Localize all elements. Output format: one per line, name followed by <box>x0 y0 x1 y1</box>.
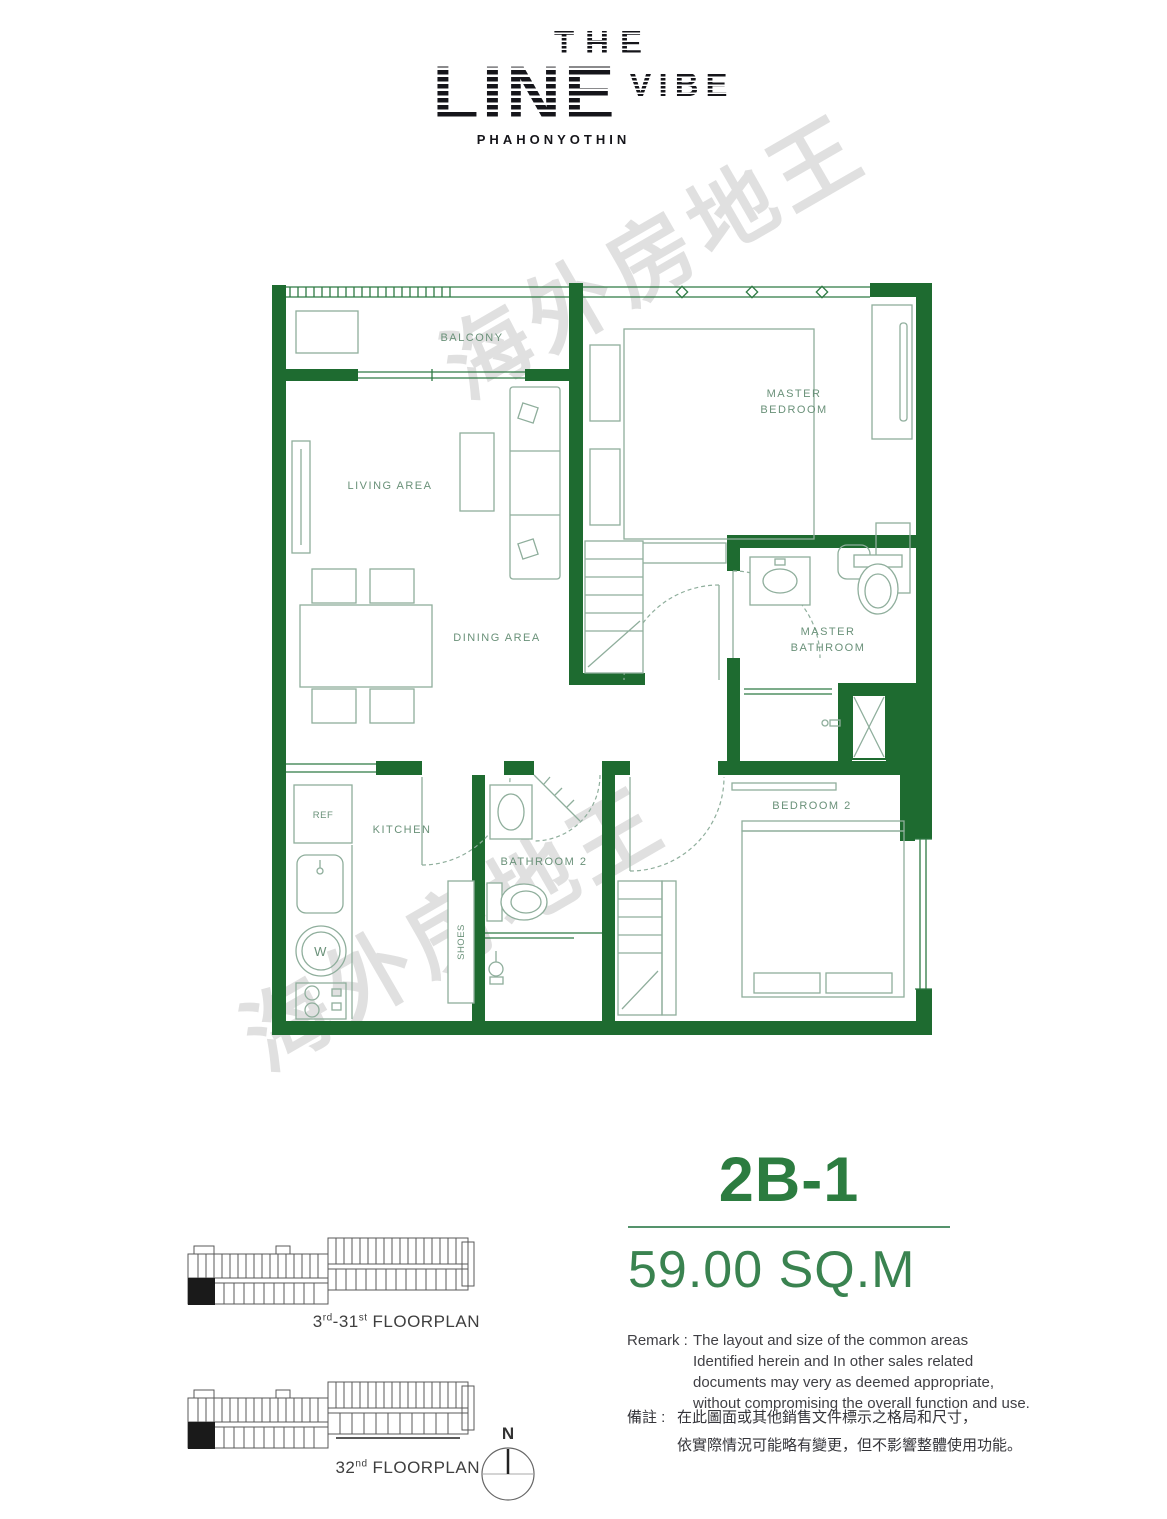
building-floorplan-3-31 <box>180 1226 480 1316</box>
label-shoes: SHOES <box>456 924 467 960</box>
unit-name: 2B-1 <box>628 1144 950 1216</box>
svg-text:BATHROOM: BATHROOM <box>791 642 866 654</box>
balcony-unit <box>296 311 358 353</box>
master-bed <box>624 329 814 539</box>
toilet-tank <box>487 883 502 921</box>
dining-chair <box>370 569 414 603</box>
bathroom2-fixtures <box>485 785 602 984</box>
shaft <box>852 695 886 759</box>
shelf <box>732 783 836 790</box>
dining-chair <box>312 689 356 723</box>
living-dining-furniture <box>292 387 560 723</box>
dining-table <box>300 605 432 687</box>
bedroom2-furniture <box>618 783 904 1015</box>
svg-text:BEDROOM: BEDROOM <box>760 404 827 416</box>
toilet <box>858 564 898 614</box>
headboard <box>742 821 904 831</box>
building-floorplan-32 <box>180 1370 480 1460</box>
compass-icon <box>479 1445 537 1503</box>
remark-line: documents may very as deemed appropriate… <box>693 1372 1030 1393</box>
pillow <box>590 345 620 421</box>
remark-line: Identified herein and In other sales rel… <box>693 1351 1030 1372</box>
dining-chair <box>370 689 414 723</box>
label-dining: DINING AREA <box>453 632 540 644</box>
remark-label: Remark : <box>627 1330 693 1414</box>
label-master-bathroom: MASTER <box>801 626 856 638</box>
unit-location-marker <box>188 1422 215 1449</box>
remark-chinese: 備註 : 在此圖面或其他銷售文件標示之格局和尺寸， 依實際情況可能略有變更，但不… <box>627 1404 1047 1460</box>
unit-location-marker <box>188 1278 215 1305</box>
toilet <box>501 884 547 920</box>
sink <box>490 785 532 839</box>
sink <box>750 557 810 605</box>
remark-english: Remark : The layout and size of the comm… <box>627 1330 1072 1414</box>
remark-zh-line: 依實際情況可能略有變更，但不影響整體使用功能。 <box>627 1432 1047 1460</box>
label-bathroom2: BATHROOM 2 <box>501 856 588 868</box>
label-balcony: BALCONY <box>440 332 503 344</box>
label-kitchen: KITCHEN <box>373 824 432 836</box>
logo-subtitle: PHAHONYOTHIN <box>477 132 690 147</box>
wardrobe <box>872 305 912 439</box>
label-fridge: REF <box>313 810 334 821</box>
logo-vibe: VIBE <box>630 66 735 104</box>
logo-row: LINE VIBE <box>432 63 734 125</box>
label-washer: W <box>314 944 328 959</box>
project-logo: THE LINE VIBE PHAHONYOTHIN <box>0 26 1167 147</box>
brochure-page: THE LINE VIBE PHAHONYOTHIN 海外房地王 海外房地王 <box>0 0 1167 1519</box>
wardrobe <box>618 881 662 1015</box>
remark-line: The layout and size of the common areas <box>693 1330 1030 1351</box>
compass-north-label: N <box>478 1424 538 1444</box>
remark-zh-line: 在此圖面或其他銷售文件標示之格局和尺寸， <box>677 1404 977 1432</box>
dining-chair <box>312 569 356 603</box>
floorplan-label-32: 32ndFLOORPLAN <box>180 1458 480 1478</box>
bed <box>742 831 904 997</box>
walkin-closet <box>585 541 643 673</box>
unit-divider <box>628 1226 950 1228</box>
pillow <box>590 449 620 525</box>
logo-line: LINE <box>432 63 617 125</box>
label-living: LIVING AREA <box>348 480 433 492</box>
floorplan-label-3-31: 3rd-31stFLOORPLAN <box>180 1312 480 1332</box>
floor-plan: BALCONY LIVING AREA DINING AREA MASTER B… <box>272 283 932 1045</box>
coffee-table <box>460 433 494 511</box>
master-bathroom-fixtures <box>750 555 902 614</box>
label-master-bedroom: MASTER <box>767 388 822 400</box>
compass: N <box>478 1424 538 1508</box>
unit-area: 59.00 SQ.M <box>628 1240 950 1300</box>
unit-info: 2B-1 59.00 SQ.M <box>628 1144 950 1300</box>
remark-zh-label: 備註 : <box>627 1404 677 1432</box>
label-bedroom2: BEDROOM 2 <box>772 800 852 812</box>
water-heater <box>489 962 503 976</box>
